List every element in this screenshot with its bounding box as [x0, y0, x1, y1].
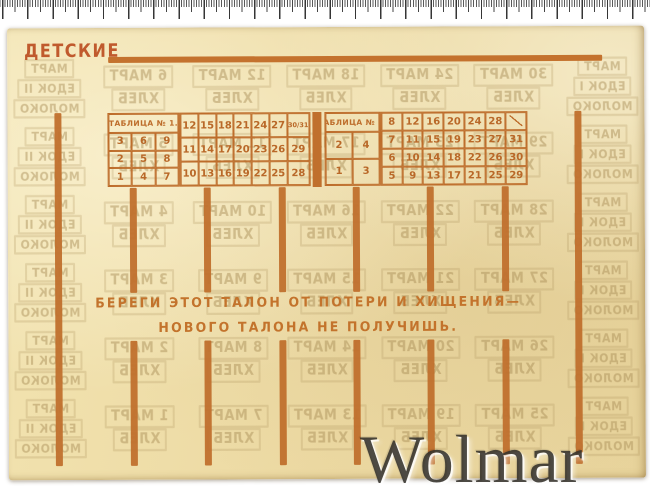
table-cell: 12: [402, 113, 423, 131]
warning-line-2: НОВОГО ТАЛОНА НЕ ПОЛУЧИШЬ.: [8, 313, 608, 340]
watermark-text: ХЛЕБ: [206, 223, 260, 246]
table-cell: 6: [132, 133, 155, 151]
table-cell: 12: [180, 114, 198, 138]
table-cell: 2: [325, 132, 352, 159]
watermark-text: МАРТ: [25, 194, 74, 214]
table-cell: 5: [382, 167, 403, 185]
watermark-text: 26 МАРТ: [475, 335, 555, 358]
watermark-stamp: 1 МАРТХЛЕБ: [93, 394, 187, 462]
table-cell: 11: [402, 131, 423, 149]
table-cell: 7: [381, 131, 402, 149]
table-1-right-grid: 12151821242730/3111141720232629101316192…: [179, 112, 310, 187]
watermark-text: ХЛЕБ: [487, 86, 541, 109]
watermark-text: ХЛЕБ: [393, 222, 447, 245]
watermark-text: 21 МАРТ: [381, 267, 461, 290]
table-cell: 17: [216, 137, 234, 161]
table-cell: 21: [464, 166, 485, 184]
table-cell: 23: [464, 130, 485, 148]
table-cell: 29: [506, 166, 527, 184]
wolmar-watermark: Wolmar: [360, 424, 583, 494]
table-cell: 17: [444, 166, 465, 184]
watermark-text: МАРТ: [579, 396, 628, 416]
table-cell: 30: [506, 148, 527, 166]
watermark-text: МОЛОКО: [15, 438, 87, 458]
warning-line-1: БЕРЕГИ ЭТОТ ТАЛОН ОТ ПОТЕРИ И ХИЩЕНИЯ—: [8, 288, 608, 315]
table-cell: 30/31: [287, 113, 310, 137]
table-cell: [506, 112, 527, 130]
scanned-ration-card-photo: МАРТЕДОК IМОЛОКО30 МАРТХЛЕБ24 МАРТХЛЕБ18…: [0, 0, 650, 502]
watermark-text: ХЛЕБ: [113, 428, 167, 451]
table-cell: 5: [132, 150, 155, 168]
table-cell: 14: [423, 148, 444, 166]
watermark-text: 4 МАРТ: [104, 201, 174, 224]
table-divider-bar: [312, 112, 321, 187]
table-header: ТАБЛИЦА № 2.: [325, 113, 379, 132]
watermark-text: ХЛЕБ: [206, 359, 260, 382]
table-cell: 3: [108, 133, 131, 151]
table-cell: 24: [251, 113, 269, 137]
table-cell: 2: [109, 151, 132, 169]
tear-line: [279, 340, 287, 465]
watermark-stamp: 4 МАРТХЛЕБ: [92, 190, 186, 258]
calendar-tables: ТАБЛИЦА № 1.369258147 12151821242730/311…: [107, 111, 527, 187]
tear-line: [353, 187, 360, 292]
table-2-right-grid: 8121620242871115192327316101418222630591…: [380, 111, 527, 186]
table-cell: 1: [109, 168, 132, 186]
watermark-text: ХЛЕБ: [113, 360, 167, 383]
table-cell: 31: [506, 130, 527, 148]
watermark-stamp: 7 МАРТХЛЕБ: [186, 393, 280, 461]
watermark-stamp: МАРТЕДОК IМОЛОКО: [560, 120, 644, 188]
table-cell: 6: [382, 149, 403, 167]
table-2-left-grid: ТАБЛИЦА № 2.2413: [324, 112, 380, 186]
watermark-text: МАРТ: [578, 124, 627, 144]
table-cell: 7: [155, 168, 178, 186]
table-header: ТАБЛИЦА № 1.: [108, 114, 178, 133]
table-cell: 18: [444, 148, 465, 166]
watermark-text: ЕДОК II: [18, 146, 81, 166]
table-cell: 28: [485, 112, 506, 130]
watermark-text: 27 МАРТ: [474, 267, 554, 290]
card-title: ДЕТСКИЕ: [24, 39, 120, 61]
watermark-text: 28 МАРТ: [474, 199, 554, 222]
watermark-text: ХЛЕБ: [207, 427, 261, 450]
table-cell: 22: [252, 161, 270, 185]
table-cell: 20: [444, 112, 465, 130]
table-cell: 4: [352, 132, 379, 159]
watermark-text: ХЛЕБ: [487, 222, 541, 245]
tear-lines: [7, 26, 644, 29]
table-cell: 11: [180, 138, 198, 162]
table-cell: 4: [132, 168, 155, 186]
tear-line: [130, 341, 138, 466]
watermark-text: 30 МАРТ: [474, 63, 554, 86]
watermark-text: ЕДОК I: [574, 348, 633, 368]
table-2: ТАБЛИЦА № 2.2413 81216202428711151923273…: [324, 111, 527, 186]
watermark-stamp: МАРТЕДОК IМОЛОКО: [561, 188, 645, 256]
tear-line: [279, 187, 286, 292]
watermark-text: МАРТ: [26, 262, 75, 282]
watermark-text: 12 МАРТ: [192, 64, 272, 87]
table-cell: 26: [269, 137, 287, 161]
watermark-text: МОЛОКО: [14, 234, 86, 254]
warning-text: БЕРЕГИ ЭТОТ ТАЛОН ОТ ПОТЕРИ И ХИЩЕНИЯ— Н…: [8, 288, 608, 340]
table-cell: 13: [198, 161, 216, 185]
watermark-text: МОЛОКО: [14, 166, 86, 186]
watermark-text: ЕДОК I: [574, 212, 633, 232]
watermark-stamp: МАРТЕДОК IIМОЛОКО: [8, 190, 92, 258]
table-cell: 8: [381, 113, 402, 131]
table-cell: 19: [234, 161, 252, 185]
table-cell: 24: [464, 112, 485, 130]
watermark-text: 18 МАРТ: [286, 64, 366, 87]
watermark-text: 6 МАРТ: [103, 65, 173, 88]
table-cell: 20: [234, 137, 252, 161]
watermark-text: МАРТ: [25, 126, 74, 146]
table-cell: 13: [423, 166, 444, 184]
watermark-text: 20 МАРТ: [381, 335, 461, 358]
watermark-text: ХЛЕБ: [300, 427, 354, 450]
table-cell: 1: [326, 158, 353, 185]
watermark-text: ЕДОК I: [573, 76, 632, 96]
table-cell: 18: [216, 113, 234, 137]
watermark-text: МОЛОКО: [13, 98, 85, 118]
watermark-stamp: МАРТЕДОК IIМОЛОКО: [9, 394, 93, 462]
watermark-text: МОЛОКО: [14, 370, 86, 390]
table-1-left-grid: ТАБЛИЦА № 1.369258147: [107, 113, 179, 187]
ration-card: МАРТЕДОК IМОЛОКО30 МАРТХЛЕБ24 МАРТХЛЕБ18…: [7, 26, 646, 481]
ruler-scale: [0, 0, 650, 22]
watermark-text: 24 МАРТ: [380, 63, 460, 86]
table-cell: 22: [464, 148, 485, 166]
tear-line: [204, 188, 211, 293]
table-1: ТАБЛИЦА № 1.369258147 12151821242730/311…: [107, 112, 310, 187]
watermark-text: ХЛЕБ: [300, 359, 354, 382]
watermark-stamp: МАРТЕДОК IIМОЛОКО: [7, 122, 91, 190]
watermark-text: ХЛЕБ: [205, 87, 259, 110]
table-cell: 26: [485, 148, 506, 166]
table-cell: 16: [423, 112, 444, 130]
table-cell: 21: [234, 113, 252, 137]
tear-line: [502, 186, 509, 291]
watermark-text: 1 МАРТ: [105, 405, 175, 428]
watermark-text: ХЛЕБ: [112, 224, 166, 247]
table-cell: 14: [198, 137, 216, 161]
watermark-text: ЕДОК II: [19, 418, 82, 438]
watermark-text: МАРТ: [579, 260, 628, 280]
table-cell: 16: [216, 161, 234, 185]
watermark-stamp: 22 МАРТХЛЕБ: [373, 188, 467, 256]
watermark-text: 2 МАРТ: [104, 337, 174, 360]
table-cell: 15: [198, 113, 216, 137]
table-cell: 8: [155, 150, 178, 168]
table-cell: 28: [287, 161, 310, 185]
table-cell: 9: [155, 133, 178, 151]
watermark-text: ХЛЕБ: [393, 86, 447, 109]
watermark-stamp: МАРТЕДОК IМОЛОКО: [560, 52, 644, 120]
watermark-text: ЕДОК II: [18, 214, 81, 234]
watermark-text: ХЛЕБ: [111, 88, 165, 111]
table-cell: 19: [444, 130, 465, 148]
watermark-text: ХЛЕБ: [300, 223, 354, 246]
watermark-text: ХЛЕБ: [488, 358, 542, 381]
table-cell: 27: [485, 130, 506, 148]
table-cell: 3: [353, 158, 380, 185]
tear-line: [130, 188, 137, 293]
watermark-text: 3 МАРТ: [104, 269, 174, 292]
watermark-text: 22 МАРТ: [380, 199, 460, 222]
table-cell: 25: [269, 161, 287, 185]
watermark-stamp: 30 МАРТХЛЕБ: [466, 52, 560, 120]
table-cell: 29: [287, 137, 310, 161]
tear-line: [204, 341, 212, 466]
table-cell: 25: [485, 166, 506, 184]
watermark-text: ЕДОК I: [573, 144, 632, 164]
watermark-stamp: 10 МАРТХЛЕБ: [186, 189, 280, 257]
table-cell: 27: [269, 113, 287, 137]
watermark-stamp: МАРТЕДОК IIМОЛОКО: [7, 54, 91, 122]
watermark-stamp: 28 МАРТХЛЕБ: [467, 188, 561, 256]
table-cell: 10: [402, 149, 423, 167]
table-cell: 10: [181, 162, 199, 186]
watermark-text: ЕДОК II: [19, 350, 82, 370]
table-cell: 23: [252, 137, 270, 161]
watermark-text: ХЛЕБ: [299, 87, 353, 110]
watermark-text: ХЛЕБ: [394, 358, 448, 381]
watermark-text: МАРТ: [578, 192, 627, 212]
watermark-text: МАРТ: [26, 398, 75, 418]
table-cell: 15: [423, 130, 444, 148]
watermark-text: ЕДОК II: [18, 78, 81, 98]
table-cell: 9: [402, 167, 423, 185]
tear-line: [427, 187, 434, 292]
